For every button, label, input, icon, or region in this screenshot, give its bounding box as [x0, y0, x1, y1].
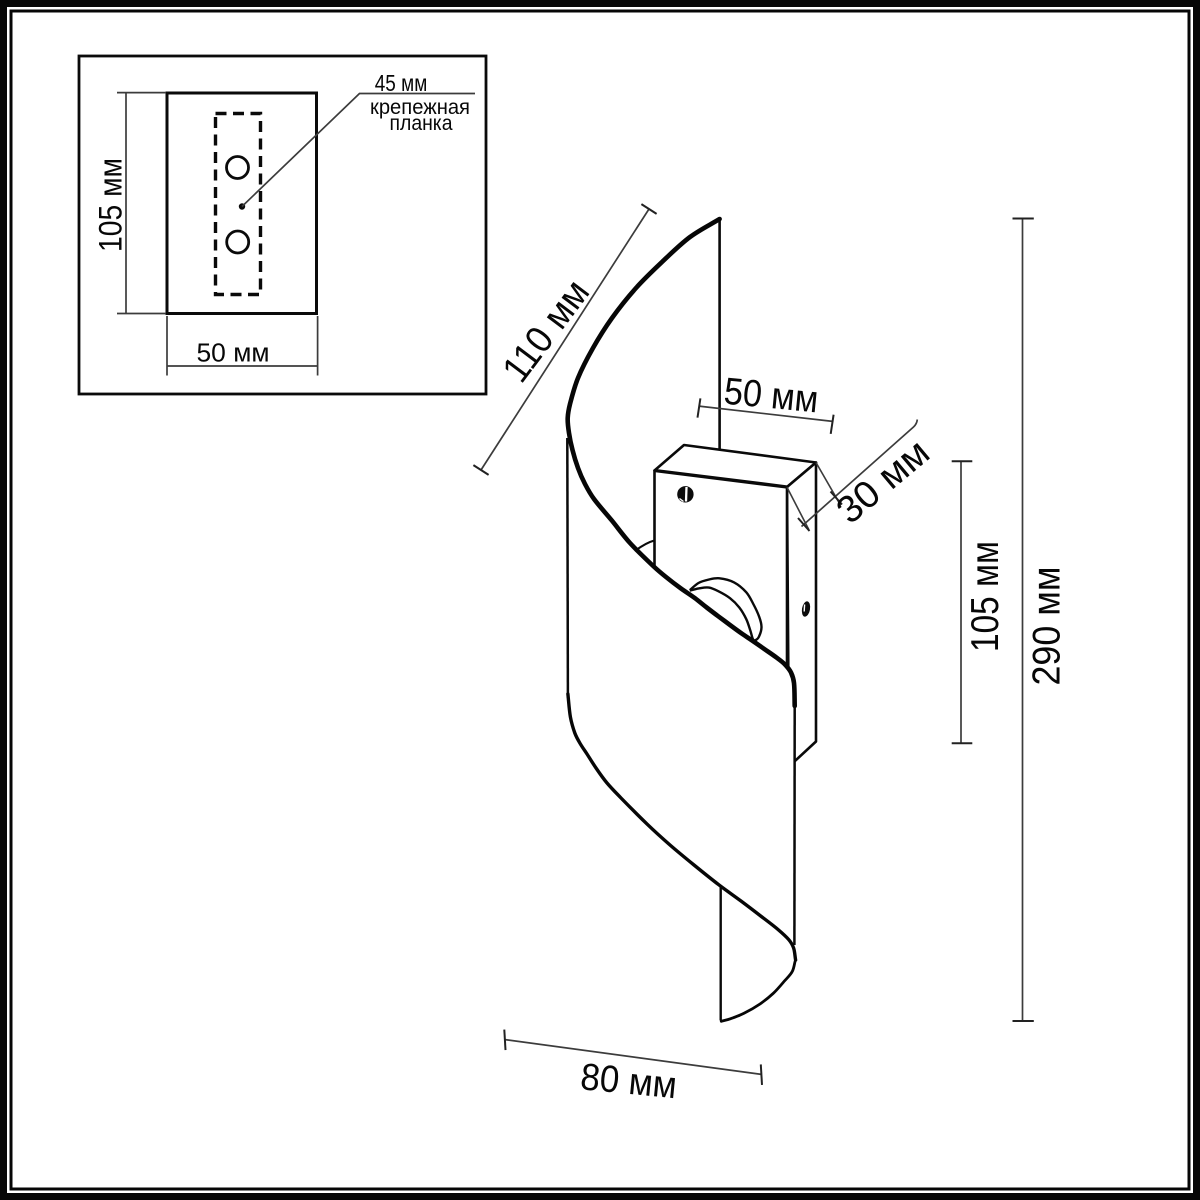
svg-text:105 мм: 105 мм	[964, 541, 1007, 652]
svg-text:45 мм: 45 мм	[375, 70, 428, 96]
svg-text:290 мм: 290 мм	[1026, 567, 1069, 686]
svg-text:50 мм: 50 мм	[197, 340, 270, 368]
svg-text:планка: планка	[390, 111, 453, 135]
svg-text:105 мм: 105 мм	[93, 158, 129, 252]
